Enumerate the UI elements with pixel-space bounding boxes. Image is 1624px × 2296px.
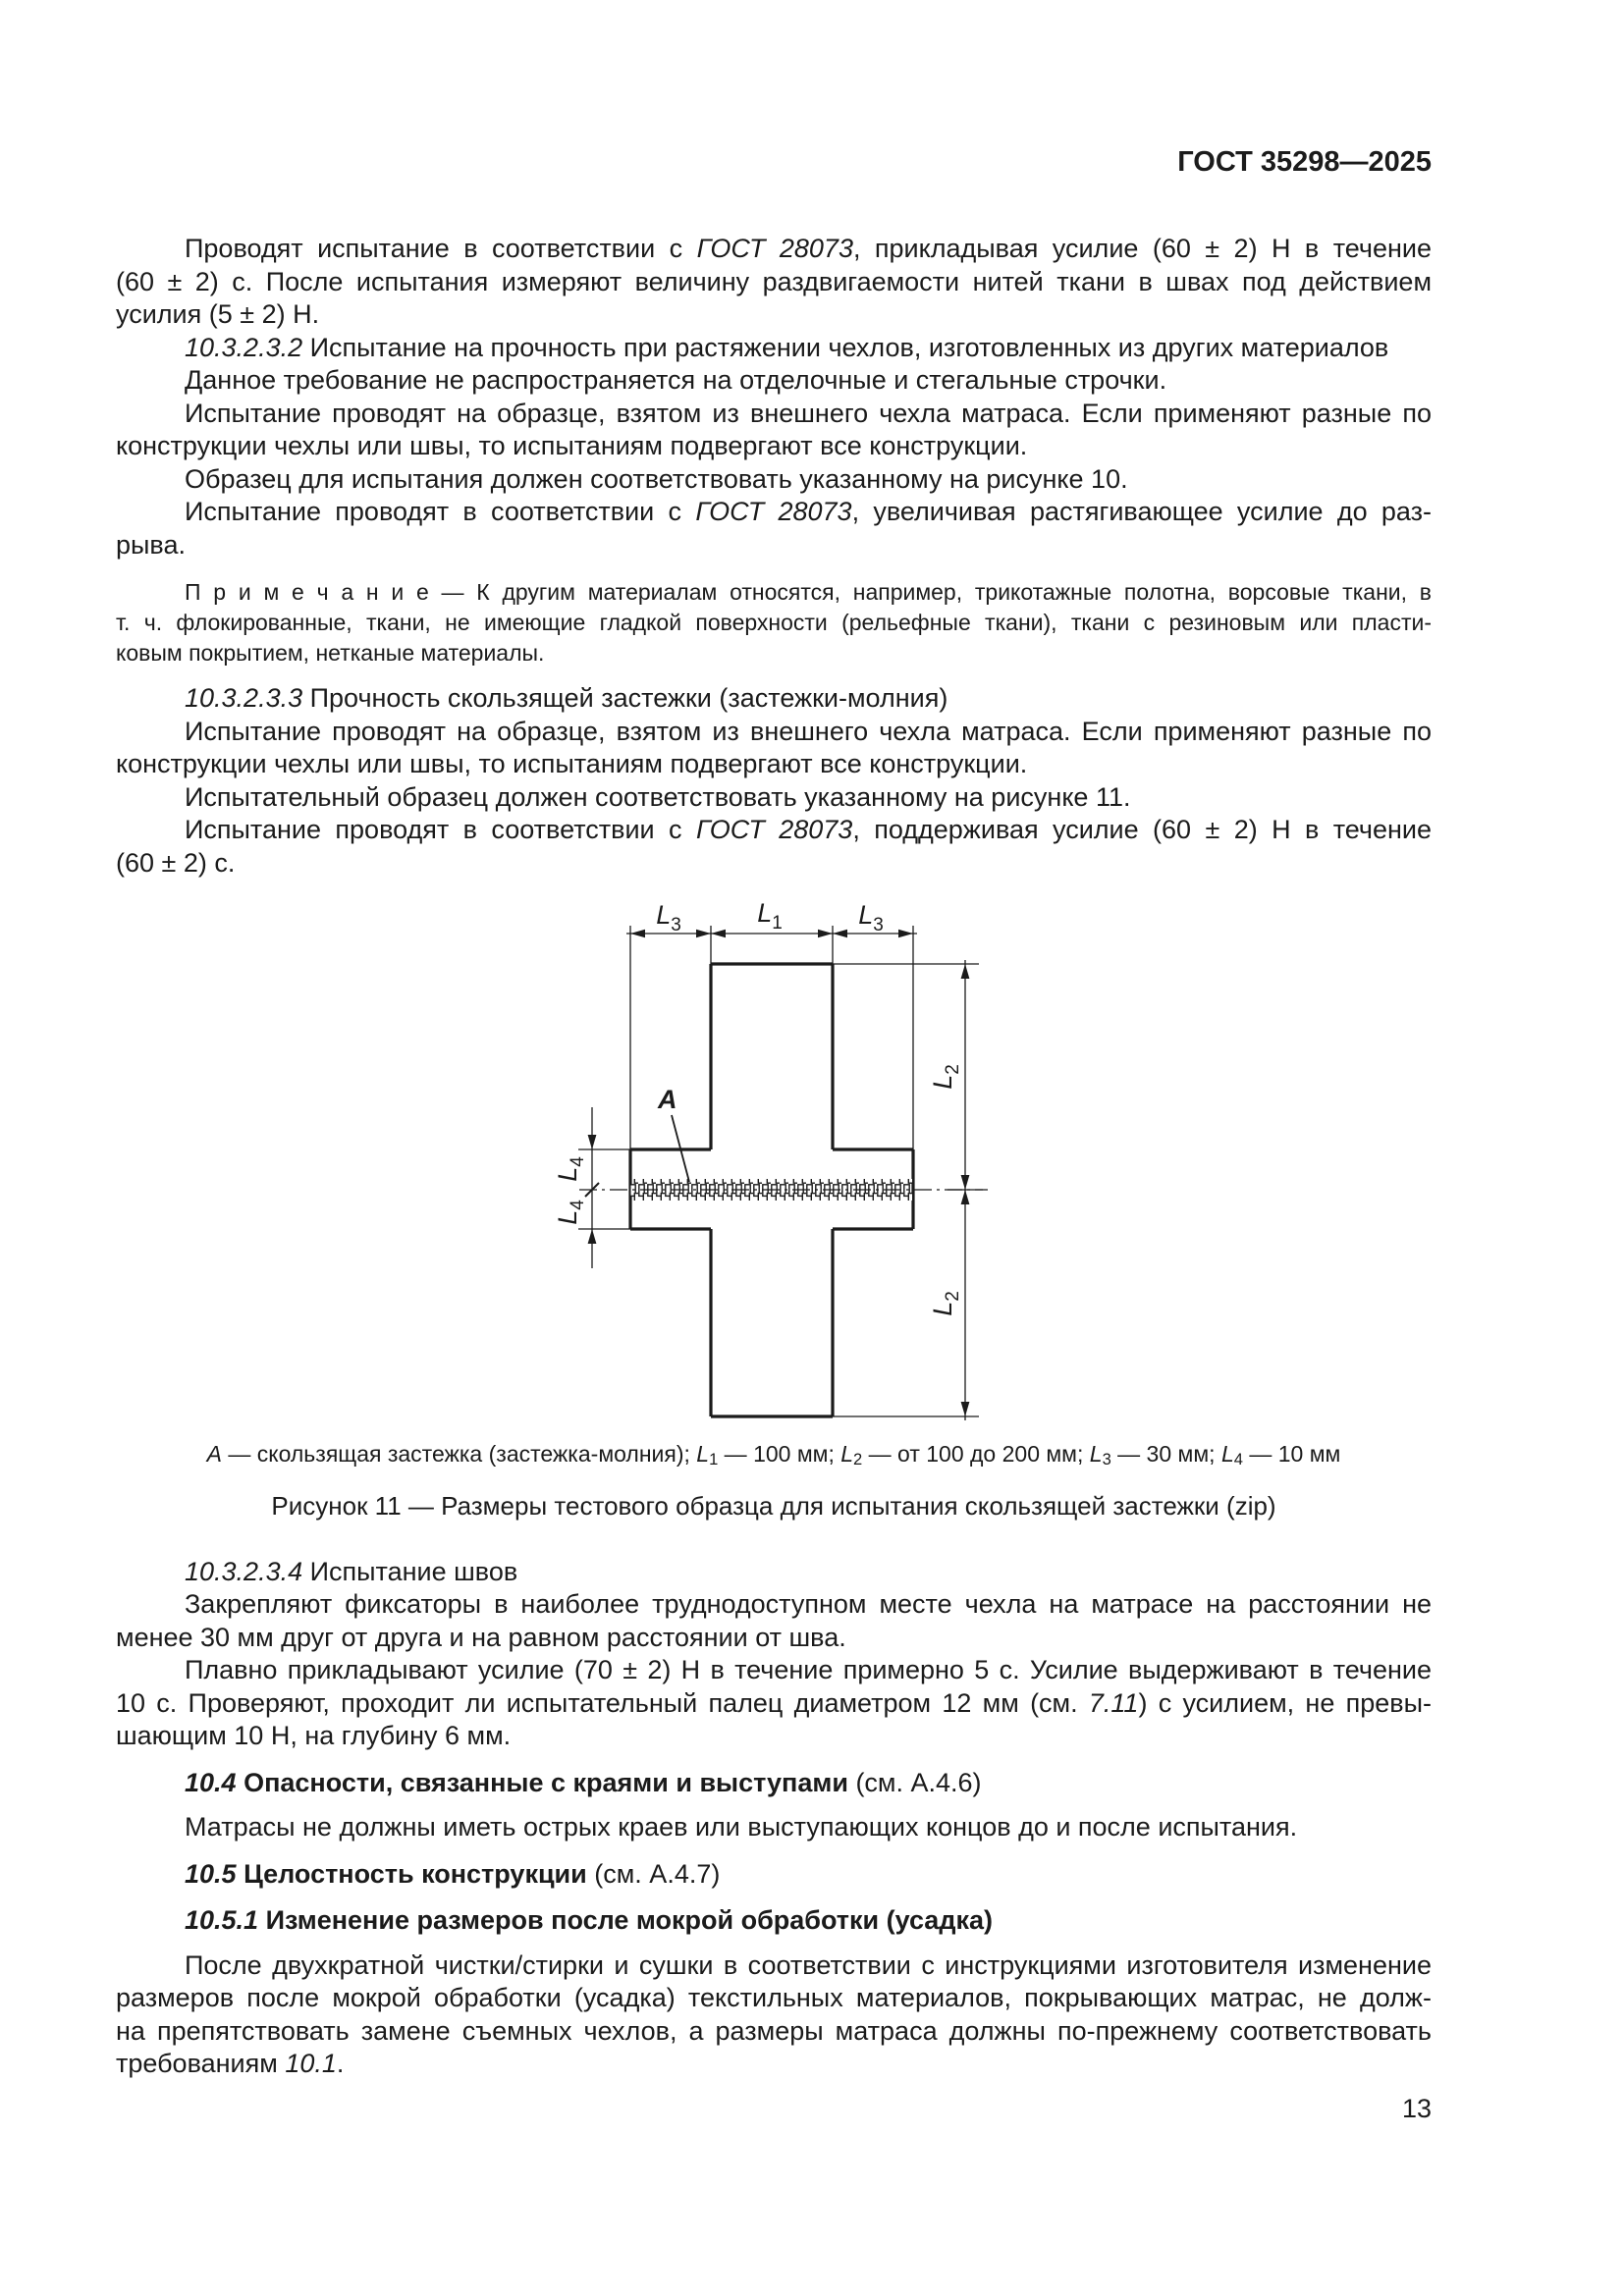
text-line: П р и м е ч а н и е — К другим материала… [116, 577, 1432, 608]
text-line: размеров после мокрой обработки (усадка)… [116, 1982, 1432, 2015]
text-section-before-figure: Проводят испытание в соответствии с ГОСТ… [116, 233, 1432, 880]
text-run: L [840, 1441, 853, 1467]
text-run: 2 [853, 1450, 862, 1468]
text-run: Испытательный образец должен соответство… [185, 782, 1130, 812]
text-run: ГОСТ 28073 [696, 815, 852, 844]
text-run: П р и м е ч а н и е — К другим материала… [185, 579, 1432, 605]
text-run: ГОСТ 28073 [695, 497, 851, 526]
text-run: L [1090, 1441, 1103, 1467]
text-line: После двухкратной чистки/стирки и сушки … [116, 1949, 1432, 1983]
text-line: Образец для испытания должен соответство… [116, 463, 1432, 497]
text-run: (см. А.4.7) [594, 1859, 720, 1889]
text-line: Матрасы не должны иметь острых краев или… [116, 1811, 1432, 1844]
text-run: усилия (5 ± 2) Н. [116, 299, 319, 329]
text-run: Опасности, связанные с краями и выступам… [237, 1768, 856, 1797]
text-run: А [207, 1441, 222, 1467]
text-line: усилия (5 ± 2) Н. [116, 298, 1432, 332]
text-run: ковым покрытием, нетканые материалы. [116, 640, 544, 666]
dim-label-L3-right: L3 [858, 900, 884, 935]
paragraph: Плавно прикладывают усилие (70 ± 2) Н в … [116, 1654, 1432, 1753]
text-run: Испытание на прочность при растяжении че… [302, 333, 1388, 362]
text-run: на препятствовать замене съемных чехлов,… [116, 2016, 1432, 2046]
text-run: Закрепляют фиксаторы в наиболее труднодо… [185, 1589, 1432, 1619]
dim-label-L4-upper: L4 [553, 1156, 588, 1182]
section-heading: 10.5.1 Изменение размеров после мокрой о… [116, 1904, 1432, 1938]
text-run: 3 [1103, 1450, 1111, 1468]
text-line: Испытание проводят на образце, взятом из… [116, 716, 1432, 749]
text-run: Данное требование не распространяется на… [185, 365, 1166, 395]
text-line: менее 30 мм друг от друга и на равном ра… [116, 1622, 1432, 1655]
text-run: — 100 мм; [718, 1441, 840, 1467]
text-line: 10.3.2.3.3 Прочность скользящей застежки… [116, 682, 1432, 716]
dim-label-L2-lower: L2 [928, 1291, 963, 1316]
text-run: Испытание проводят в соответствии с [185, 497, 695, 526]
note-paragraph: П р и м е ч а н и е — К другим материала… [116, 577, 1432, 668]
paragraph: Испытание проводят на образце, взятом из… [116, 716, 1432, 781]
dim-label-L2-upper: L2 [928, 1064, 963, 1090]
section-heading: 10.4 Опасности, связанные с краями и выс… [116, 1767, 1432, 1800]
paragraph: После двухкратной чистки/стирки и сушки … [116, 1949, 1432, 2081]
text-run: 10.3.2.3.2 [185, 333, 302, 362]
paragraph: 10.3.2.3.4 Испытание швов [116, 1556, 1432, 1589]
extension-lines [578, 926, 979, 1416]
text-line: рыва. [116, 529, 1432, 562]
text-run: менее 30 мм друг от друга и на равном ра… [116, 1623, 846, 1652]
text-line: конструкции чехлы или швы, то испытаниям… [116, 748, 1432, 781]
text-line: Испытание проводят в соответствии с ГОСТ… [116, 814, 1432, 847]
text-line: 10.4 Опасности, связанные с краями и выс… [116, 1767, 1432, 1800]
paragraph: Проводят испытание в соответствии с ГОСТ… [116, 233, 1432, 332]
text-run: Испытание проводят в соответствии с [185, 815, 696, 844]
text-run: размеров после мокрой обработки (усадка)… [116, 1983, 1432, 2012]
dim-label-L4-lower: L4 [553, 1200, 588, 1225]
paragraph: 10.3.2.3.2 Испытание на прочность при ра… [116, 332, 1432, 365]
text-line: требованиям 10.1. [116, 2048, 1432, 2081]
text-line: Испытание проводят на образце, взятом из… [116, 398, 1432, 431]
text-line: Плавно прикладывают усилие (70 ± 2) Н в … [116, 1654, 1432, 1687]
text-run: конструкции чехлы или швы, то испытаниям… [116, 749, 1027, 778]
text-run: конструкции чехлы или швы, то испытаниям… [116, 431, 1027, 460]
page-number: 13 [116, 2093, 1432, 2126]
text-line: Испытательный образец должен соответство… [116, 781, 1432, 815]
text-run: — 10 мм [1243, 1441, 1340, 1467]
text-run: 4 [1234, 1450, 1243, 1468]
dim-label-L3-left: L3 [656, 900, 681, 935]
text-run: 10.5 [185, 1859, 237, 1889]
paragraph: Испытание проводят в соответствии с ГОСТ… [116, 496, 1432, 561]
paragraph: Данное требование не распространяется на… [116, 364, 1432, 398]
text-run: , увеличивая растягивающее усилие до раз… [852, 497, 1432, 526]
dimension-right [947, 960, 983, 1420]
text-run: L [696, 1441, 709, 1467]
text-run: ГОСТ 28073 [697, 234, 853, 263]
text-run: L [1221, 1441, 1234, 1467]
paragraph: 10.3.2.3.3 Прочность скользящей застежки… [116, 682, 1432, 716]
paragraph: Закрепляют фиксаторы в наиболее труднодо… [116, 1588, 1432, 1654]
text-line: 10.3.2.3.2 Испытание на прочность при ра… [116, 332, 1432, 365]
text-line: 10.3.2.3.4 Испытание швов [116, 1556, 1432, 1589]
text-run: Проводят испытание в соответствии с [185, 234, 697, 263]
text-run: Испытание проводят на образце, взятом из… [185, 717, 1432, 746]
text-run: После двухкратной чистки/стирки и сушки … [185, 1950, 1432, 1980]
text-run: Испытание швов [302, 1557, 517, 1586]
paragraph: Испытательный образец должен соответство… [116, 781, 1432, 815]
text-line: ковым покрытием, нетканые материалы. [116, 638, 1432, 668]
text-run: Изменение размеров после мокрой обработк… [258, 1905, 993, 1935]
text-line: (60 ± 2) с. [116, 847, 1432, 881]
text-run: Матрасы не должны иметь острых краев или… [185, 1812, 1297, 1842]
section-heading: 10.5 Целостность конструкции (см. А.4.7) [116, 1858, 1432, 1892]
text-line: конструкции чехлы или швы, то испытаниям… [116, 430, 1432, 463]
text-line: 10 с. Проверяют, проходит ли испытательн… [116, 1687, 1432, 1721]
text-section-after-figure: 10.3.2.3.4 Испытание швовЗакрепляют фикс… [116, 1556, 1432, 2081]
figure-area: L3 L1 L3 L2 L2 [116, 881, 1432, 1522]
text-run: (60 ± 2) с. После испытания измеряют вел… [116, 267, 1432, 296]
text-run: шающим 10 Н, на глубину 6 мм. [116, 1721, 511, 1750]
text-line: Закрепляют фиксаторы в наиболее труднодо… [116, 1588, 1432, 1622]
text-line: Проводят испытание в соответствии с ГОСТ… [116, 233, 1432, 266]
text-run: 10.3.2.3.3 [185, 683, 302, 713]
text-run: — 30 мм; [1111, 1441, 1221, 1467]
text-run: требованиям [116, 2049, 285, 2078]
text-line: шающим 10 Н, на глубину 6 мм. [116, 1720, 1432, 1753]
paragraph: Испытание проводят в соответствии с ГОСТ… [116, 814, 1432, 880]
text-run: Испытание проводят на образце, взятом из… [185, 399, 1432, 428]
text-run: 10.5.1 [185, 1905, 258, 1935]
figure-caption: А — скользящая застежка (застежка-молния… [116, 1439, 1432, 1474]
text-run: 7.11 [1089, 1688, 1139, 1718]
document-content: Проводят испытание в соответствии с ГОСТ… [116, 233, 1432, 2125]
paragraph: Испытание проводят на образце, взятом из… [116, 398, 1432, 463]
callout-a-label: А [657, 1085, 677, 1114]
figure-drawing: L3 L1 L3 L2 L2 [550, 881, 1011, 1431]
paragraph: Образец для испытания должен соответство… [116, 463, 1432, 497]
text-line: (60 ± 2) с. После испытания измеряют вел… [116, 266, 1432, 299]
dim-label-L1: L1 [757, 898, 783, 934]
text-run: т. ч. флокированные, ткани, не имеющие г… [116, 610, 1432, 635]
text-line: т. ч. флокированные, ткани, не имеющие г… [116, 608, 1432, 638]
text-run: Прочность скользящей застежки (застежки-… [302, 683, 947, 713]
text-run: Целостность конструкции [237, 1859, 595, 1889]
text-run: 10.1 [285, 2049, 337, 2078]
text-run: Образец для испытания должен соответство… [185, 464, 1128, 494]
dimension-left [585, 1107, 599, 1268]
text-run: рыва. [116, 530, 186, 560]
text-line: на препятствовать замене съемных чехлов,… [116, 2015, 1432, 2049]
text-run: 10.3.2.3.4 [185, 1557, 302, 1586]
text-run: 10.4 [185, 1768, 237, 1797]
figure-title: Рисунок 11 — Размеры тестового образца д… [116, 1490, 1432, 1522]
paragraph: Матрасы не должны иметь острых краев или… [116, 1811, 1432, 1844]
document-page: ГОСТ 35298—2025 Проводят испытание в соо… [0, 0, 1624, 2296]
text-run: (см. А.4.6) [855, 1768, 981, 1797]
text-run: 10 с. Проверяют, проходит ли испытательн… [116, 1688, 1089, 1718]
text-run: — от 100 до 200 мм; [862, 1441, 1090, 1467]
text-run: , поддерживая усилие (60 ± 2) Н в течени… [852, 815, 1432, 844]
text-line: 10.5.1 Изменение размеров после мокрой о… [116, 1904, 1432, 1938]
text-line: 10.5 Целостность конструкции (см. А.4.7) [116, 1858, 1432, 1892]
text-line: Испытание проводят в соответствии с ГОСТ… [116, 496, 1432, 529]
document-header: ГОСТ 35298—2025 [116, 147, 1432, 177]
text-run: Плавно прикладывают усилие (70 ± 2) Н в … [185, 1655, 1432, 1684]
text-line: Данное требование не распространяется на… [116, 364, 1432, 398]
text-run: — скользящая застежка (застежка-молния); [222, 1441, 696, 1467]
text-run: (60 ± 2) с. [116, 848, 235, 878]
text-run: , прикладывая усилие (60 ± 2) Н в течени… [853, 234, 1432, 263]
text-run: . [337, 2049, 345, 2078]
text-run: ) с усилием, не превы- [1138, 1688, 1432, 1718]
text-run: 1 [709, 1450, 718, 1468]
